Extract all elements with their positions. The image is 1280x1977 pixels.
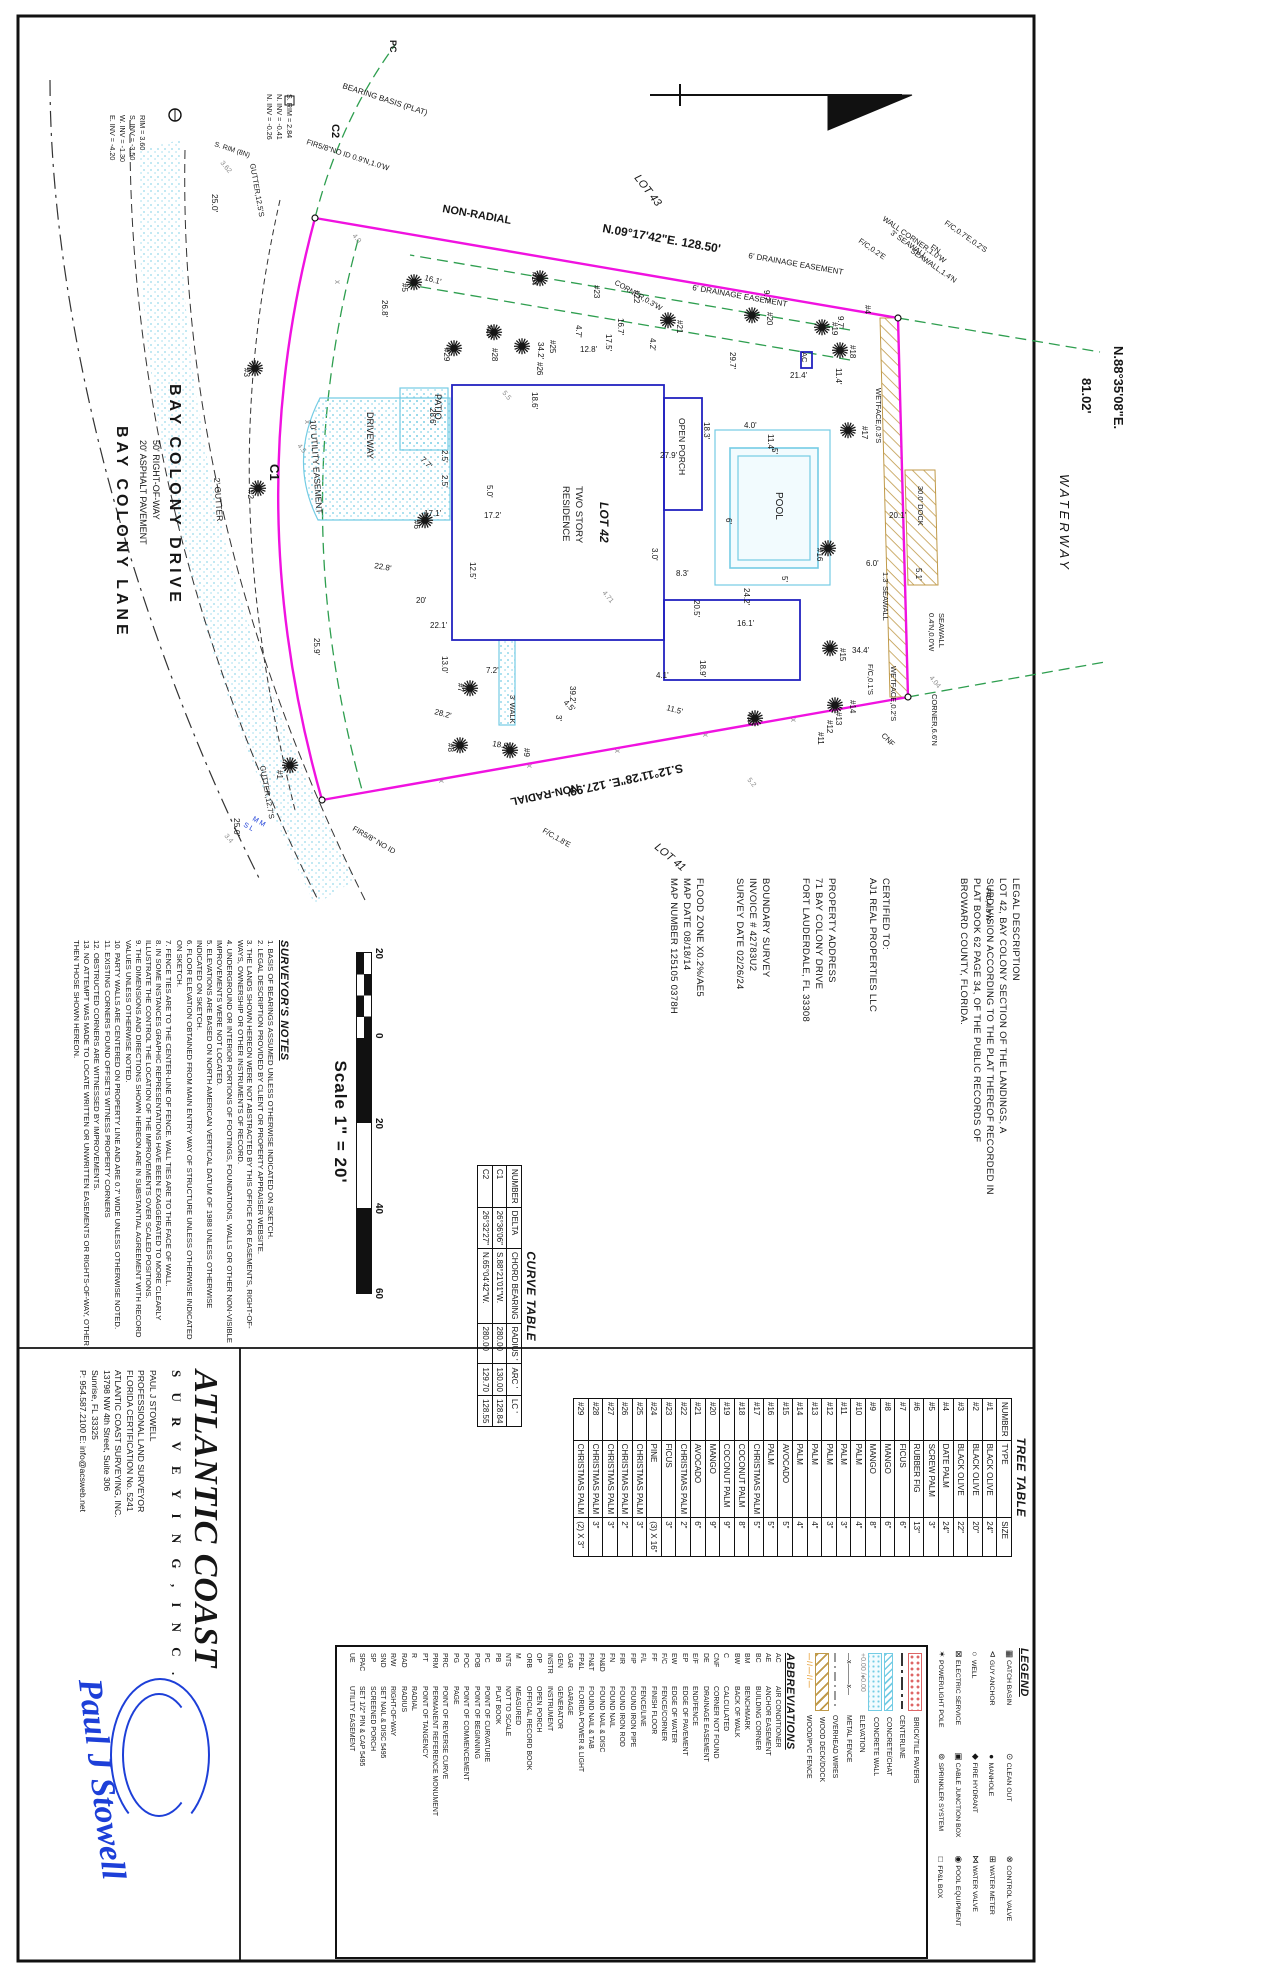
table-cell: BLACK OLIVE — [982, 1440, 997, 1518]
table-cell: MANGO — [705, 1440, 720, 1518]
drawing-label: 20.5' — [692, 600, 701, 618]
table-row: #6RUBBER FIG13" — [909, 1399, 924, 1557]
abbreviation-desc: SET NAIL & DISC 5495 — [377, 1686, 387, 1953]
drawing-label: 18.6' — [530, 392, 539, 410]
drawing-label: 2.5' — [440, 450, 449, 463]
table-cell: PALM — [836, 1440, 851, 1518]
abbreviation-key: M — [512, 1653, 522, 1686]
table-cell: #12 — [822, 1399, 837, 1441]
survey-info: BOUNDARY SURVEYINVOICE # 42783U2SURVEY D… — [733, 878, 772, 990]
drawing-label: LOT 41 — [652, 841, 688, 874]
abbreviation-desc: PERMANENT REFERENCE MONUMENT — [429, 1686, 439, 1953]
elevation-swatch: +0.00 /♦0.00 — [858, 1653, 866, 1709]
legend-item: ✶POWER/LIGHT POLE — [936, 1648, 947, 1751]
table-cell: #1 — [982, 1399, 997, 1441]
table-cell: 6" — [895, 1518, 910, 1556]
abbreviation-desc: END/FENCE — [689, 1686, 699, 1953]
drawing-label: 24.2' — [742, 588, 751, 606]
drawing-label: #10 — [746, 712, 755, 726]
drawing-label: 5' — [780, 576, 789, 582]
table-cell: #14 — [793, 1399, 808, 1441]
power-light-pole-icon: ✶ — [936, 1648, 947, 1660]
surveyor-note: 2. LEGAL DESCRIPTION PROVIDED BY CLIENT … — [255, 940, 265, 1346]
surveyor-note: 6. FLOOR ELEVATION OBTAINED FROM MAIN EN… — [174, 940, 193, 1346]
pool-equipment-icon: ◉ — [953, 1853, 964, 1865]
table-cell: CHRISTMAS PALM — [632, 1440, 647, 1518]
drawing-label: F/C,0.7'E,0.2'S — [943, 218, 989, 254]
abbreviation-desc: RADIAL — [408, 1686, 418, 1953]
property-address: PROPERTY ADDRESS71 BAY COLONY DRIVEFORT … — [799, 878, 838, 1022]
drawing-label: #23 — [592, 285, 601, 299]
table-row: #25CHRISTMAS PALM3" — [632, 1399, 647, 1557]
column-header: LC ' — [507, 1395, 522, 1426]
drawing-label: F/C,1.8'E — [541, 826, 572, 849]
drawing-label: 17.2' — [484, 511, 502, 520]
info-line: BROWARD COUNTY, FLORIDA. — [957, 878, 970, 1195]
drawing-label: 34.4' — [852, 646, 870, 655]
drawing-label: 4.2' — [648, 338, 657, 351]
abbreviation-desc: UTILITY EASEMENT — [345, 1686, 355, 1953]
table-cell: CHRISTMAS PALM — [676, 1440, 691, 1518]
drawing-label: 2.5' — [440, 475, 449, 488]
abbreviation-desc: PLAT BOOK — [491, 1686, 501, 1953]
table-cell: #27 — [603, 1399, 618, 1441]
table-cell: 5" — [778, 1518, 793, 1556]
table-cell: 5" — [763, 1518, 778, 1556]
drawing-label: 9.7' — [762, 290, 771, 303]
drawing-label: 5.0' — [485, 485, 494, 498]
symbol-label: CONCRETE/CHAT — [885, 1717, 892, 1776]
table-cell: AVOCADO — [690, 1440, 705, 1518]
surveyor-note: 13. NO ATTEMPT WAS MADE TO LOCATE WRITTE… — [72, 940, 91, 1346]
table-cell: #26 — [617, 1399, 632, 1441]
drawing-label: AC — [800, 352, 809, 363]
drawing-label: S. INV = -3.50 — [128, 115, 137, 160]
table-row: #21AVOCADO6" — [690, 1399, 705, 1557]
drawing-label: 20' — [416, 596, 427, 605]
table-cell: 4" — [793, 1518, 808, 1556]
legend-item: ▦CATCH BASIN — [1004, 1648, 1015, 1751]
abbreviation-key: E/F — [689, 1653, 699, 1686]
drawing-label: CNF — [880, 731, 898, 749]
table-cell: 8" — [734, 1518, 749, 1556]
abbreviation-key: EW — [668, 1653, 678, 1686]
fpl-box-icon: □ — [937, 1853, 947, 1865]
table-row: #2BLACK OLIVE20" — [968, 1399, 983, 1557]
drawing-label: WATERWAY — [1057, 474, 1072, 572]
info-line: FLOOD ZONE X0.2%/AE5 — [693, 878, 706, 1014]
firm-line: PAUL J STOWELL — [146, 1370, 158, 1681]
table-cell: #15 — [778, 1399, 793, 1441]
drawing-label: LOT 43 — [632, 172, 665, 209]
table-cell: (2) X 3" — [574, 1518, 589, 1556]
drawing-label: 6' DRAINAGE EASEMENT — [748, 251, 844, 277]
drawing-label: x — [789, 718, 798, 722]
drawing-label: 4.04 — [927, 675, 941, 690]
table-row: C226°32'27"N.65°04'42"W.280.00129.70128.… — [478, 1166, 493, 1427]
water-meter-icon: ⊞ — [987, 1853, 998, 1865]
abbreviation-desc: POINT OF BEGINNING — [470, 1686, 480, 1953]
abbreviation-desc: POINT OF TANGENCY — [418, 1686, 428, 1953]
table-cell: BLACK OLIVE — [968, 1440, 983, 1518]
abbreviation-key: PRC — [439, 1653, 449, 1686]
legend-item: □FP&L BOX — [937, 1853, 947, 1956]
info-line: 71 BAY COLONY DRIVE — [812, 878, 825, 1022]
table-cell: #3 — [953, 1399, 968, 1441]
scale-tick: 0 — [373, 1033, 384, 1039]
abbreviation-desc: FENCE/CORNER — [658, 1686, 668, 1953]
table-cell: MANGO — [866, 1440, 881, 1518]
table-cell: #23 — [661, 1399, 676, 1441]
abbreviation-desc: FLORIDA POWER & LIGHT — [574, 1686, 584, 1953]
abbreviation-desc: POINT OF REVERSE CURVE — [439, 1686, 449, 1953]
symbol-item: +0.00 /♦0.00ELEVATION — [855, 1653, 868, 1953]
table-row: #26CHRISTMAS PALM2" — [617, 1399, 632, 1557]
survey-sheet-landscape: ✺✺✺✺✺✺✺✺✺✺✺✺✺✺✺✺✺✺✺✺✺ N.88°35'08"E.81.02… — [0, 0, 1280, 1977]
table-cell: 24" — [939, 1518, 954, 1556]
legend-item: ⊗CONTROL VALVE — [1004, 1853, 1015, 1956]
drawing-label: S L — [242, 822, 255, 833]
abbreviation-key: EP — [678, 1653, 688, 1686]
table-cell: #2 — [968, 1399, 983, 1441]
legend-label: CLEAN OUT — [1005, 1763, 1012, 1802]
drawing-label: 3' — [554, 715, 563, 721]
symbol-label: CONCRETE WALL — [872, 1717, 879, 1776]
drawing-label: 4.0' — [744, 421, 757, 430]
abbreviation-key: FF — [647, 1653, 657, 1686]
abbreviation-key: BM — [741, 1653, 751, 1686]
column-header: CHORD BEARING — [507, 1248, 522, 1323]
legend-label: WATER VALVE — [971, 1865, 978, 1912]
surveyor-note: 12. OBSTRUCTED CORNERS ARE WITNESSED BY … — [92, 940, 102, 1346]
drawing-label: x — [437, 779, 446, 783]
table-cell: 128.55 — [478, 1395, 493, 1426]
surveyor-note: 5. ELEVATIONS ARE BASED ON NORTH AMERICA… — [195, 940, 214, 1346]
drawing-label: 16.1' — [423, 273, 442, 286]
drawing-label: 25.0' — [210, 194, 220, 213]
drawing-label: CORNER,6.6'N — [930, 694, 939, 746]
drawing-label: 12.8' — [580, 345, 598, 354]
table-cell: #5 — [924, 1399, 939, 1441]
abbreviation-desc: FOUND IRON PIPE — [626, 1686, 636, 1953]
table-cell: (3) X 16" — [647, 1518, 662, 1556]
table-cell: 3" — [836, 1518, 851, 1556]
drawing-label: #29 — [442, 348, 451, 362]
graphic-scale: 200204060 Scale 1" = 20' — [330, 952, 384, 1294]
drawing-label: TWO STORY — [573, 486, 584, 544]
drawing-label: #18 — [848, 345, 857, 359]
drawing-label: #7 — [456, 683, 465, 692]
drawing-label: 11.4' — [834, 368, 843, 385]
guy-anchor-icon: ⊲ — [987, 1648, 998, 1660]
symbol-item: OVERHEAD WIRES — [828, 1653, 841, 1953]
table-row: #5SCREW PALM3" — [924, 1399, 939, 1557]
abbreviation-key: CNF — [710, 1653, 720, 1686]
abbreviation-key: PG — [449, 1653, 459, 1686]
firm-line: FLORIDA CERTIFICATION No. 5241 — [123, 1370, 135, 1681]
scale-ticks: 200204060 — [372, 952, 384, 1294]
north-arrow-icon — [650, 84, 912, 130]
drawing-label: 4.7' — [574, 325, 583, 338]
table-cell: BLACK OLIVE — [953, 1440, 968, 1518]
table-cell: 26°36'06" — [492, 1207, 507, 1248]
drawing-label: 18.9' — [698, 660, 707, 678]
drawing-label: 4.71 — [600, 590, 614, 605]
firm-line: ATLANTIC COAST SURVEYING, INC. — [112, 1370, 124, 1681]
column-header: NUMBER — [997, 1399, 1012, 1441]
symbol-item: CONCRETE WALL — [868, 1653, 881, 1953]
abbreviation-desc: BENCHMARK — [741, 1686, 751, 1953]
table-cell: 6" — [880, 1518, 895, 1556]
drawing-label: DRIVEWAY — [365, 412, 375, 459]
scale-bar — [356, 952, 372, 1294]
table-row: #15AVOCADO5" — [778, 1399, 793, 1557]
column-header: SIZE — [997, 1518, 1012, 1556]
abbreviation-key: GEN — [554, 1653, 564, 1686]
drawing-label: 4.1' — [656, 671, 669, 680]
abbreviation-desc: OFFICIAL RECORD BOOK — [522, 1686, 532, 1953]
legend-label: FIRE HYDRANT — [971, 1763, 978, 1813]
drawing-label: FIR5/8"NO ID 0.9'N,1.0'W — [305, 137, 391, 173]
table-row: #12PALM3" — [822, 1399, 837, 1557]
abbreviation-desc: MEASURED — [512, 1686, 522, 1953]
symbol-label: OVERHEAD WIRES — [831, 1715, 838, 1778]
legend-label: MANHOLE — [988, 1763, 995, 1797]
table-row: #29CHRISTMAS PALM(2) X 3" — [574, 1399, 589, 1557]
drawing-label: #5 — [400, 283, 409, 292]
scale-tick: 20 — [373, 1118, 384, 1129]
drawing-label: 0.4'N,0.0'W — [927, 613, 936, 652]
well-icon: ○ — [971, 1648, 981, 1660]
abbreviation-key: FIP — [626, 1653, 636, 1686]
table-row: #1BLACK OLIVE24" — [982, 1399, 997, 1557]
drawing-label: 5.1' — [914, 568, 923, 581]
abbreviation-desc: SET 1/2" PIN & CAP 5495 — [356, 1686, 366, 1953]
drawing-label: #15 — [838, 648, 847, 662]
table-cell: 4" — [851, 1518, 866, 1556]
abbreviations-title: ABBREVIATIONS — [784, 1653, 796, 1953]
abbreviation-desc: EDGE OF PAVEMENT — [678, 1686, 688, 1953]
table-cell: #4 — [939, 1399, 954, 1441]
drawing-label: 29.7' — [728, 352, 737, 370]
table-cell: #6 — [909, 1399, 924, 1441]
drawing-label: 27.9' — [660, 451, 678, 460]
legend-label: WELL — [971, 1660, 978, 1679]
drawing-label: #12 — [825, 720, 834, 734]
overhead-wires-swatch — [834, 1653, 836, 1709]
table-cell: C2 — [478, 1166, 493, 1208]
table-cell: PALM — [763, 1440, 778, 1518]
legend-item: ⊚SPRINKLER SYSTEM — [936, 1751, 947, 1854]
abbreviation-desc: AIR CONDITIONER — [772, 1686, 782, 1953]
info-line: SUBDIVISION ACCORDING TO THE PLAT THEREO… — [983, 878, 996, 1195]
firm-line: 13798 NW 4th Street, Suite 306 — [100, 1370, 112, 1681]
table-row: #22CHRISTMAS PALM2" — [676, 1399, 691, 1557]
drawing-label: 1.3' SEAWALL — [881, 572, 890, 621]
drawing-label: 3' WALK — [508, 695, 517, 724]
drawing-label: GUTTER,12.5'S — [248, 163, 266, 218]
table-cell: #7 — [895, 1399, 910, 1441]
drawing-label: x — [613, 749, 622, 753]
wood-deck-dock-swatch — [815, 1653, 829, 1711]
symbol-label: BRICK/TILE PAVERS — [912, 1717, 919, 1783]
abbreviation-desc: RADIUS — [397, 1686, 407, 1953]
drawing-label: #17 — [860, 426, 869, 440]
drawing-label: 50' RIGHT-OF-WAY — [151, 440, 161, 520]
info-line: MAP DATE 08/18/14 — [680, 878, 693, 1014]
table-cell: #28 — [588, 1399, 603, 1441]
table-row: #8MANGO6" — [880, 1399, 895, 1557]
abbreviation-desc: FENCE/LINE — [637, 1686, 647, 1953]
abbreviation-key: PB — [491, 1653, 501, 1686]
drawing-label: x — [525, 764, 534, 768]
table-cell: 20" — [968, 1518, 983, 1556]
table-row: #27CHRISTMAS PALM3" — [603, 1399, 618, 1557]
drawing-label: 13.0' — [440, 656, 449, 674]
drawing-label: 7.2' — [486, 666, 499, 675]
drawing-label: F/C,0.1'S — [866, 664, 875, 695]
table-row: C126°36'06"S.88°21'01"W.280.00130.00128.… — [492, 1166, 507, 1427]
table-cell: #20 — [705, 1399, 720, 1441]
legend-item: ◆FIRE HYDRANT — [970, 1751, 981, 1854]
drawing-label: BAY COLONY DRIVE — [166, 384, 183, 606]
drawing-label: x — [303, 420, 312, 424]
symbol-item: CENTERLINE — [895, 1653, 908, 1953]
firm-title-block: ATLANTIC COAST S U R V E Y I N G , I N C… — [18, 1348, 240, 1961]
drawing-label: WALL CORNER,1.0'W — [881, 214, 949, 265]
drawing-label: LOT 42 — [597, 502, 611, 543]
info-line: CERTIFIED TO: — [879, 878, 892, 1012]
drawing-label: 16.7' — [616, 318, 625, 336]
legend: LEGEND ▦CATCH BASIN⊙CLEAN OUT⊗CONTROL VA… — [933, 1648, 1030, 1956]
abbreviation-key: AE — [762, 1653, 772, 1686]
table-cell: #21 — [690, 1399, 705, 1441]
abbreviation-key: UE — [345, 1653, 355, 1686]
table-row: #14PALM4" — [793, 1399, 808, 1557]
table-cell: FICUS — [661, 1440, 676, 1518]
drawing-label: WETFACE,0.3'S — [874, 388, 883, 443]
drawing-label: NON-RADIAL — [441, 203, 512, 227]
table-cell: 8" — [866, 1518, 881, 1556]
drawing-label: 6' — [724, 518, 733, 524]
abbreviation-key: F/C — [658, 1653, 668, 1686]
drawing-label: 30.0' DOCK — [916, 486, 925, 526]
drawing-label: S.12°11'28"E. 127.99' — [566, 761, 685, 799]
table-cell: 3" — [924, 1518, 939, 1556]
firm-line: P: 954.587.2100 E: info@acsweb.net — [77, 1370, 89, 1681]
table-cell: CHRISTMAS PALM — [588, 1440, 603, 1518]
symbol-label: WOOD/PVC FENCE — [805, 1715, 812, 1779]
table-cell: #25 — [632, 1399, 647, 1441]
info-line: MAP NUMBER 125105 0378H — [667, 878, 680, 1014]
tree-table: TREE TABLE NUMBERTYPESIZE#1BLACK OLIVE24… — [573, 1398, 1028, 1557]
drawing-label: C1 — [267, 464, 282, 481]
drawing-label: x — [701, 733, 710, 737]
drawing-label: #27 — [485, 325, 494, 339]
info-line: FORT LAUDERDALE, FL 33308 — [799, 878, 812, 1022]
abbreviation-key: BC — [751, 1653, 761, 1686]
tree-table-title: TREE TABLE — [1014, 1398, 1028, 1557]
abbreviation-key: DE — [699, 1653, 709, 1686]
abbreviation-key: FP&L — [574, 1653, 584, 1686]
legend-item: ⊞WATER METER — [987, 1853, 998, 1956]
table-cell: 2" — [676, 1518, 691, 1556]
drawing-label: 16.1' — [737, 619, 755, 628]
table-cell: 3" — [588, 1518, 603, 1556]
info-line: AJ1 REAL PROPERTIES LLC — [866, 878, 879, 1012]
drawing-label: N.09°17'42"E. 128.50' — [601, 221, 721, 256]
drawing-label: #21 — [675, 320, 684, 334]
abbreviation-key: POC — [460, 1653, 470, 1686]
table-cell: 130.00 — [492, 1364, 507, 1395]
symbol-item: —//—//—WOOD/PVC FENCE — [801, 1653, 814, 1953]
symbol-item: —x———x—METAL FENCE — [842, 1653, 855, 1953]
table-cell: 3" — [603, 1518, 618, 1556]
drawing-label: 26.8' — [380, 300, 389, 318]
drawing-label: 6.0' — [866, 559, 879, 568]
column-header: DELTA — [507, 1207, 522, 1248]
surveyor-note: 1. BASIS OF BEARINGS ASSUMED UNLESS OTHE… — [266, 940, 276, 1346]
table-cell: 22" — [953, 1518, 968, 1556]
legend-item: ●MANHOLE — [988, 1751, 998, 1854]
drawing-label: #3 — [242, 368, 251, 377]
metal-fence-swatch: —x———x— — [844, 1653, 852, 1709]
table-cell: #9 — [866, 1399, 881, 1441]
drawing-label: NON-RADIAL — [509, 781, 580, 807]
info-line: PLAT BOOK 62 PAGE 34, OF THE PUBLIC RECO… — [970, 878, 983, 1195]
table-cell: #10 — [851, 1399, 866, 1441]
drawing-label: 81.02' — [1079, 378, 1094, 414]
table-cell: C1 — [492, 1166, 507, 1208]
tree-symbol-icon: ✺ — [509, 337, 534, 355]
column-header: ARC ' — [507, 1364, 522, 1395]
legend-title: LEGEND — [1018, 1648, 1030, 1956]
drawing-label: PC — [388, 40, 398, 53]
drawing-label: RIM = 3.60 — [138, 115, 147, 150]
survey-sheet-page: ✺✺✺✺✺✺✺✺✺✺✺✺✺✺✺✺✺✺✺✺✺ N.88°35'08"E.81.02… — [0, 0, 1280, 1977]
table-cell: S.88°21'01"W. — [492, 1248, 507, 1323]
table-cell: AVOCADO — [778, 1440, 793, 1518]
abbreviation-desc: NOT TO SCALE — [502, 1686, 512, 1953]
abbreviation-desc: FINISH FLOOR — [647, 1686, 657, 1953]
centerline-swatch — [901, 1653, 903, 1709]
abbreviation-desc: POINT OF CURVATURE — [481, 1686, 491, 1953]
abbreviation-key: FN&T — [585, 1653, 595, 1686]
line-symbols: BRICK/TILE PAVERSCENTERLINECONCRETE/CHAT… — [801, 1653, 922, 1953]
abbreviation-key: PRM — [429, 1653, 439, 1686]
legend-label: SPRINKLER SYSTEM — [937, 1763, 944, 1831]
drawing-label: 8.3' — [676, 569, 689, 578]
legend-item: ◉POOL EQUIPMENT — [953, 1853, 964, 1956]
column-header: NUMBER — [507, 1166, 522, 1208]
drawing-label: 21.4' — [790, 371, 808, 380]
fire-hydrant-icon: ◆ — [970, 1751, 981, 1763]
abbreviation-key: ORB — [522, 1653, 532, 1686]
abbreviation-key: OP — [533, 1653, 543, 1686]
table-cell: 280.00 — [478, 1323, 493, 1364]
table-cell: CHRISTMAS PALM — [617, 1440, 632, 1518]
drawing-label: 20' ASPHALT PAVEMENT — [138, 440, 148, 545]
table-row: #28CHRISTMAS PALM3" — [588, 1399, 603, 1557]
surveyor-note: 7. FENCE TIES ARE TO THE CENTER-LINE OF … — [164, 940, 174, 1346]
table-cell: COCONUT PALM — [734, 1440, 749, 1518]
drawing-label: #16 — [815, 548, 824, 562]
drawing-label: #14 — [848, 700, 857, 714]
drawing-label: 22.1' — [430, 621, 448, 630]
table-cell: DATE PALM — [939, 1440, 954, 1518]
abbreviation-desc: ANCHOR EASEMENT — [762, 1686, 772, 1953]
surveyor-note: 10. PARTY WALLS ARE CENTERED ON PROPERTY… — [113, 940, 123, 1346]
